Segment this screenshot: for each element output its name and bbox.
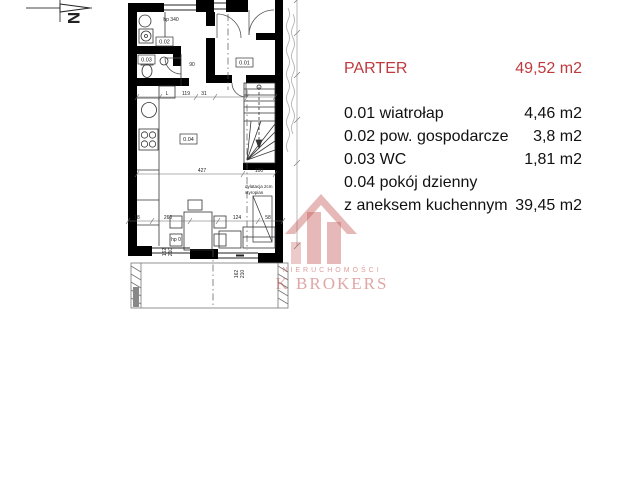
room-area: 3,8 m2 bbox=[510, 125, 582, 148]
terrace bbox=[131, 263, 288, 308]
floor-total-area: 49,52 m2 bbox=[515, 60, 582, 78]
stove-icon bbox=[139, 129, 158, 150]
dim-260: 260 bbox=[164, 215, 173, 221]
room-label-002: 0.02 bbox=[159, 40, 170, 46]
room-name: 0.04 pokój dzienny bbox=[344, 171, 477, 194]
dim-18: 18 bbox=[134, 215, 140, 221]
sideboard bbox=[219, 231, 241, 248]
floor-title: PARTER bbox=[344, 60, 407, 78]
area-legend: PARTER 49,52 m2 0.01 wiatrołap 4,46 m2 0… bbox=[344, 60, 582, 217]
note-hp-bottom: hp 0 bbox=[171, 237, 181, 243]
dim-31: 31 bbox=[201, 91, 207, 97]
note-dilatation-2: styropian bbox=[245, 190, 264, 195]
legend-row-003: 0.03 WC 1,81 m2 bbox=[344, 148, 582, 171]
room-area: 4,46 m2 bbox=[510, 102, 582, 125]
room-area: 1,81 m2 bbox=[510, 148, 582, 171]
kitchen-unit bbox=[137, 86, 175, 246]
legend-row-004b: z aneksem kuchennym 39,45 m2 bbox=[344, 194, 582, 217]
dim-100: 100 bbox=[255, 168, 264, 174]
legend-title-row: PARTER 49,52 m2 bbox=[344, 60, 582, 78]
room-area: 39,45 m2 bbox=[510, 194, 582, 217]
room-name: z aneksem kuchennym bbox=[344, 194, 508, 217]
room-area bbox=[510, 171, 582, 194]
dim-427: 427 bbox=[198, 168, 207, 174]
washbasin-icon bbox=[160, 57, 168, 65]
dim-90: 90 bbox=[189, 62, 195, 68]
note-hp-top: hp 340 bbox=[163, 17, 179, 23]
legend-row-002: 0.02 pow. gospodarcze 3,8 m2 bbox=[344, 125, 582, 148]
dim-210-a: 210 bbox=[168, 248, 174, 257]
walls bbox=[128, 0, 283, 263]
room-label-003: 0.03 bbox=[141, 58, 152, 64]
north-letter: N bbox=[64, 12, 83, 24]
boiler-icon bbox=[139, 15, 151, 27]
legend-row-001: 0.01 wiatrołap 4,46 m2 bbox=[344, 102, 582, 125]
dim-124: 124 bbox=[233, 215, 242, 221]
dim-58: 58 bbox=[265, 215, 271, 221]
dining-set bbox=[170, 200, 275, 250]
room-name: 0.02 pow. gospodarcze bbox=[344, 125, 509, 148]
sink-icon bbox=[142, 103, 157, 118]
room-name: 0.03 WC bbox=[344, 148, 406, 171]
room-label-004: 0.04 bbox=[183, 137, 194, 143]
fridge-label: L bbox=[166, 91, 169, 97]
dim-119: 119 bbox=[182, 91, 190, 97]
floor-plan-page: N bbox=[0, 0, 640, 480]
room-label-001: 0.01 bbox=[239, 61, 250, 67]
north-arrow-icon: N bbox=[26, 0, 92, 24]
note-dilatation-1: dylatacja 2cm bbox=[245, 184, 273, 189]
dimension-lines bbox=[126, 94, 285, 224]
legend-row-004a: 0.04 pokój dzienny bbox=[344, 171, 582, 194]
room-name: 0.01 wiatrołap bbox=[344, 102, 444, 125]
garden-hatching bbox=[287, 0, 301, 249]
dim-210-b: 210 bbox=[240, 270, 246, 279]
